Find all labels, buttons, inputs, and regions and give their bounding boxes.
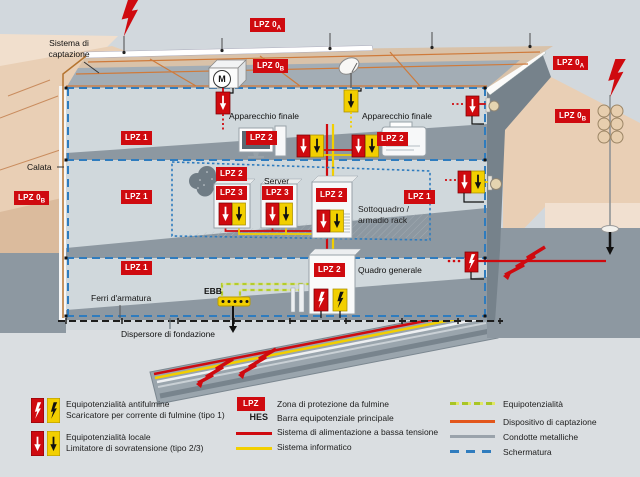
label-apparecchio-finale: Apparecchio finale [229,111,299,121]
badge-lpz2: LPZ 2 [316,188,347,202]
label-calata: Calata [27,162,52,172]
legend-equipotential-swatch [450,402,495,406]
badge-lpz2: LPZ 2 [314,263,345,277]
surge-arrester-red-icon [31,431,44,456]
lpz-protection-diagram: Sistema dicaptazione Calata Apparecchio … [0,0,640,477]
legend-lpz-badge: LPZ [237,397,265,411]
label-dispersore: Dispersore di fondazione [121,329,215,339]
lightning-arrester-red-icon [31,398,44,423]
outdoor-lamp-icon [489,101,499,111]
main-distribution-cabinet [309,249,361,318]
legend-power-line-swatch [236,432,272,435]
badge-lpz1: LPZ 1 [121,131,152,145]
legend-item-antifulmine: Equipotenzialità antifulmineScaricatore … [66,399,225,420]
label-quadro-generale: Quadro generale [358,265,422,275]
legend-item-locale: Equipotenzialità localeLimitatore di sov… [66,432,204,453]
ground-left [0,253,66,333]
badge-lpz3: LPZ 3 [262,186,293,200]
legend-schermatura-swatch [450,450,495,454]
ground-right [487,228,640,338]
legend-it-line-swatch [236,447,272,450]
legend-power-label: Sistema di alimentazione a bassa tension… [277,427,438,438]
surge-arrester-yellow-icon [47,431,60,456]
badge-lpz1: LPZ 1 [121,261,152,275]
legend-schermatura-label: Schermatura [503,447,552,458]
motor-icon: M [213,70,231,88]
badge-lpz1: LPZ 1 [404,190,435,204]
label-ebb: EBB [204,286,222,296]
label-sistema-captazione: Sistema dicaptazione [40,38,98,60]
legend-hes-key: HES [239,412,268,423]
legend-equipotential-label: Equipotenzialità [503,399,563,410]
legend-condotte-swatch [450,435,495,438]
outdoor-lamp-icon [491,179,502,190]
label-apparecchio-finale: Apparecchio finale [362,111,432,121]
badge-lpz2: LPZ 2 [246,131,277,145]
badge-lpz3: LPZ 3 [216,186,247,200]
legend-captazione-swatch [450,420,495,423]
badge-lpz2: LPZ 2 [377,132,408,146]
legend-captazione-label: Dispositivo di captazione [503,417,597,428]
badge-lpz2: LPZ 2 [216,167,247,181]
legend-hes-label: Barra equipotenziale principale [277,413,394,424]
sub-distribution-rack [312,176,358,238]
legend-it-label: Sistema informatico [277,442,352,453]
badge-lpz0b: LPZ 0B [253,59,288,73]
badge-lpz0b: LPZ 0B [555,109,590,123]
badge-lpz1: LPZ 1 [121,190,152,204]
legend-lpz-label: Zona di protezione da fulmine [277,399,389,410]
badge-lpz0b: LPZ 0B [14,191,49,205]
legend-condotte-label: Condotte metalliche [503,432,578,443]
label-sottoquadro: Sottoquadro /armadio rack [358,204,409,226]
metal-conduit [291,288,295,312]
lightning-arrester-yellow-icon [47,398,60,423]
label-server: Server [264,176,289,186]
label-ferri-armatura: Ferri d'armatura [91,293,151,303]
badge-lpz0a: LPZ 0A [553,56,588,70]
badge-lpz0a: LPZ 0A [250,18,285,32]
metal-conduit [299,284,304,312]
